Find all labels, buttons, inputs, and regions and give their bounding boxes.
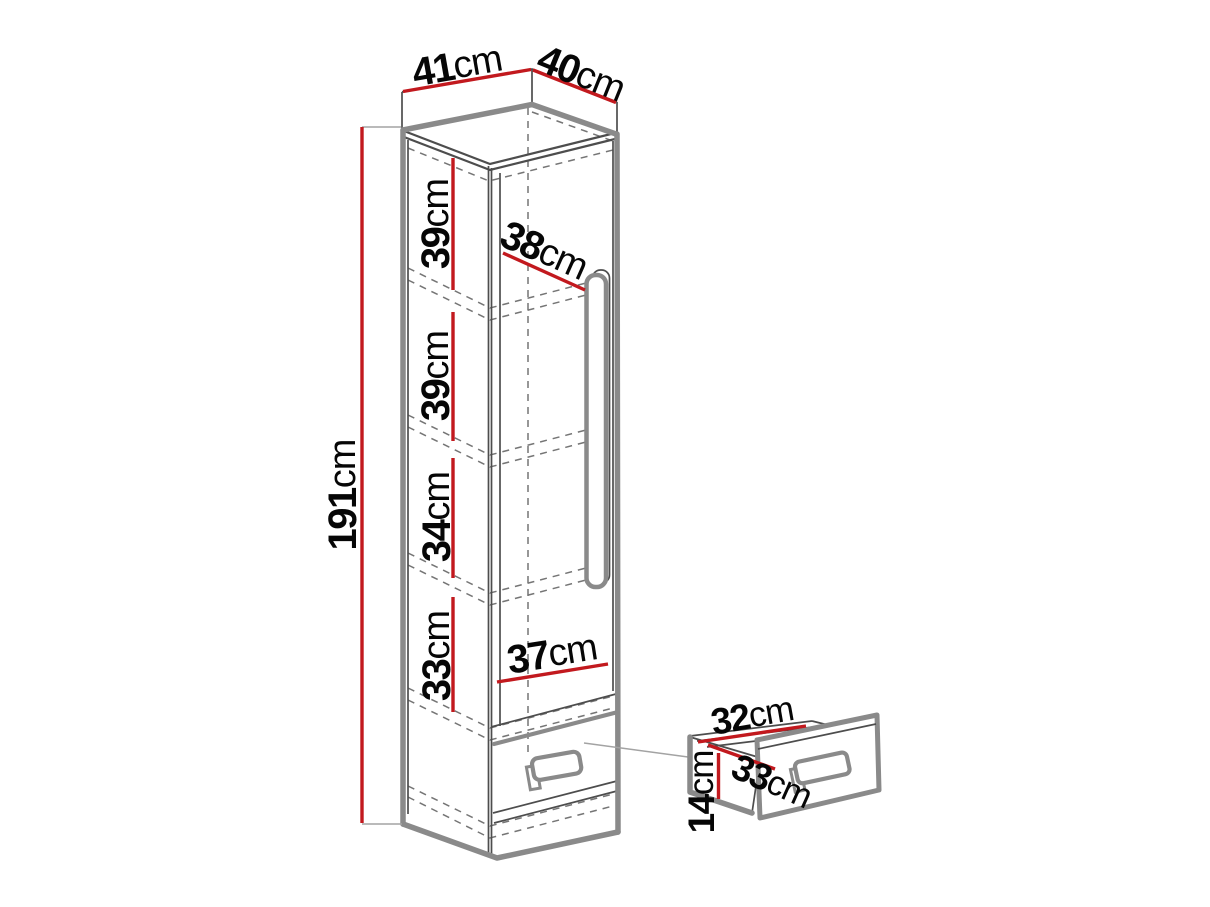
diagram-canvas: 41cm 40cm 191cm 39cm 39cm 34cm 33cm 38cm… (0, 0, 1210, 907)
right-outer-edge (617, 134, 618, 832)
dim-label-bottom-interior-width: 37cm (504, 625, 600, 683)
shelf-dashed-edge (408, 427, 613, 467)
bottom-panel-dashed-edge (408, 786, 613, 826)
cabinet-drawer-handle (525, 751, 583, 790)
dim-label-top-depth: 40cm (531, 37, 631, 112)
base-front-top-edge (494, 791, 617, 823)
dim-label-interior-width: 38cm (494, 213, 594, 290)
dim-label-shelf-gap-1: 39cm (414, 179, 458, 269)
dim-label-drawer-height: 14cm (681, 751, 722, 834)
drawer-front-bottom-edge (493, 781, 617, 813)
shelf-dashed-edge (408, 280, 613, 320)
bottom-panel-dashed-edge (408, 797, 613, 838)
dim-label-shelf-gap-4: 33cm (415, 611, 459, 701)
dim-label-shelf-gap-3: 34cm (415, 472, 459, 562)
door-handle-bar (587, 275, 607, 587)
dim-label-height: 191cm (321, 440, 365, 551)
top-rim-thick-edge (403, 105, 616, 135)
door-handle (587, 270, 610, 587)
bottom-outer-edge (403, 824, 618, 858)
door-bottom-edge (491, 694, 616, 727)
drawer-shelf-front-edge (494, 712, 618, 744)
shelf-dashed-edge (408, 565, 613, 605)
drawer-callout-line (584, 743, 688, 757)
cabinet-drawer-handle-bar (531, 751, 582, 781)
dim-label-top-width: 41cm (409, 37, 505, 96)
furniture-dimension-diagram: 41cm 40cm 191cm 39cm 39cm 34cm 33cm 38cm… (0, 0, 1210, 907)
dim-label-shelf-gap-2: 39cm (414, 331, 458, 421)
